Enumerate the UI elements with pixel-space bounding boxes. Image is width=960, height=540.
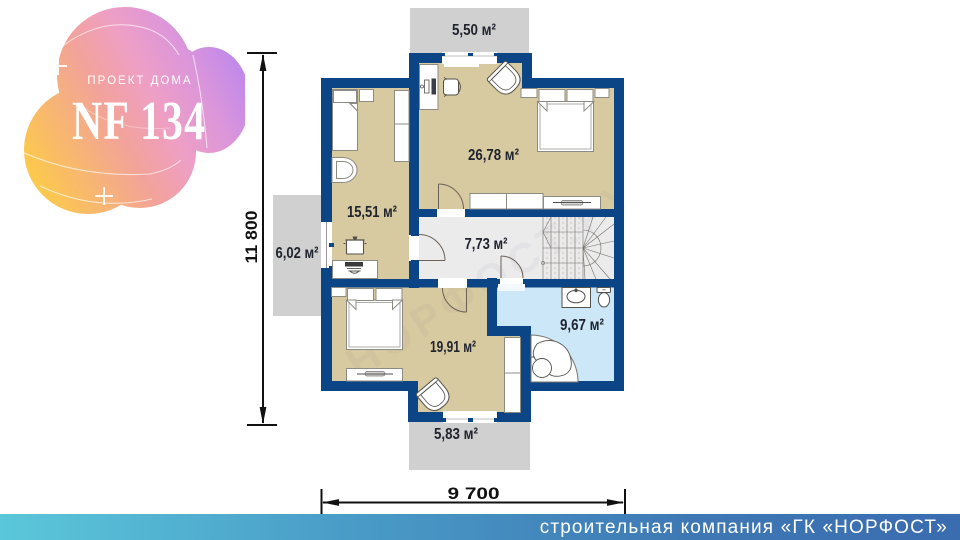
svg-text:NF 134: NF 134 [72,89,206,151]
svg-text:7,73 м²: 7,73 м² [465,236,508,253]
svg-text:26,78 м²: 26,78 м² [468,147,519,164]
svg-text:9 700: 9 700 [448,484,500,503]
svg-text:6,02 м²: 6,02 м² [276,245,319,262]
svg-text:9,67 м²: 9,67 м² [560,317,604,334]
svg-text:19,91 м²: 19,91 м² [430,339,476,356]
svg-text:11 800: 11 800 [242,211,261,264]
svg-text:5,83 м²: 5,83 м² [434,426,478,443]
svg-text:строительная компания «ГК «НОР: строительная компания «ГК «НОРФОСТ» [540,517,948,538]
svg-text:5,50 м²: 5,50 м² [452,22,496,39]
svg-text:ПРОЕКТ ДОМА: ПРОЕКТ ДОМА [87,75,192,87]
svg-text:15,51 м²: 15,51 м² [347,204,397,221]
